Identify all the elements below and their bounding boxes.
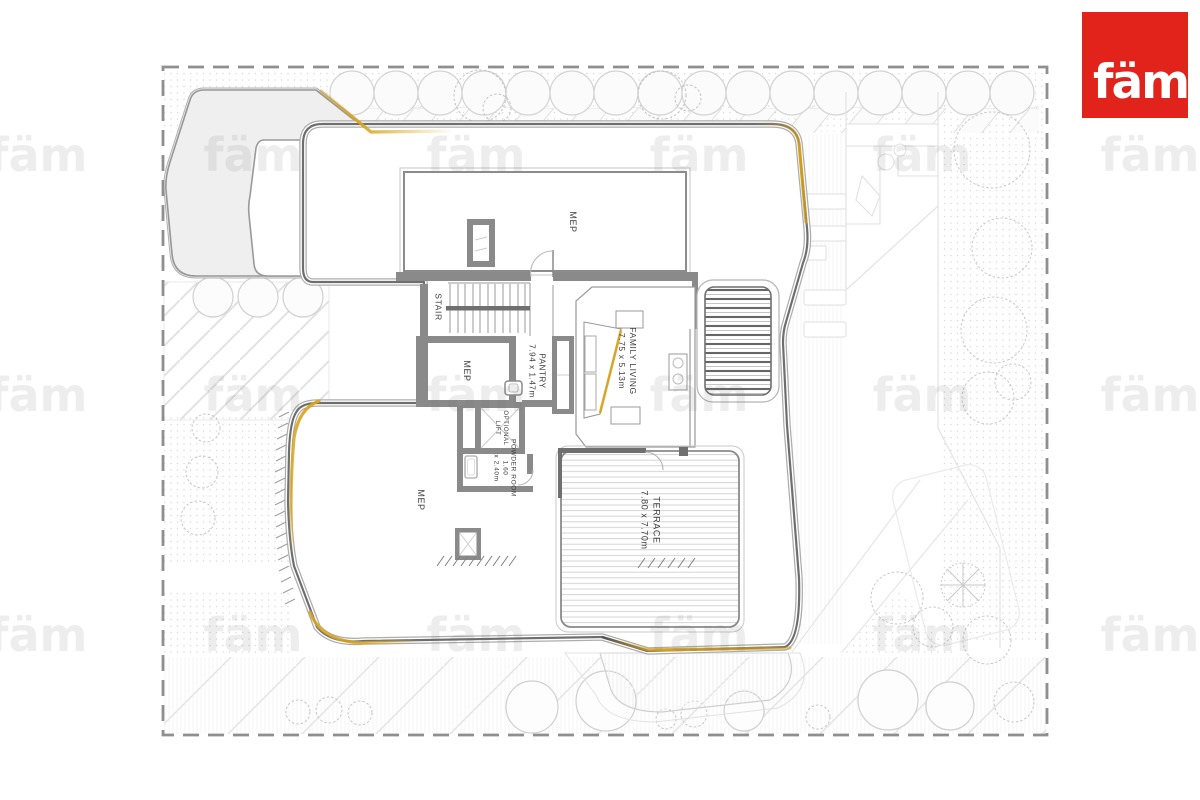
optional-lift-block: [457, 402, 525, 454]
fam-logo-text: fäm®: [1093, 59, 1200, 106]
dandelion-tree: [941, 563, 985, 607]
floor-plan-page: fämfämfämfämfämfämfämfämfämfämfämfämfämf…: [0, 0, 1200, 800]
fam-logo: fäm®: [1082, 12, 1188, 118]
trees-left: [193, 277, 323, 317]
room-mep-upper: [400, 168, 690, 275]
media-unit-top: [616, 311, 643, 328]
media-unit-bottom: [611, 407, 640, 424]
stair-rail: [446, 306, 530, 311]
side-table: [669, 354, 687, 390]
room-family-living: [576, 287, 695, 447]
terrace-post: [679, 447, 688, 456]
terrace-deck: [556, 446, 744, 632]
registered-mark: ®: [1190, 60, 1200, 73]
wc-fixture: [505, 381, 522, 395]
floor-plan-drawing: [0, 0, 1200, 800]
